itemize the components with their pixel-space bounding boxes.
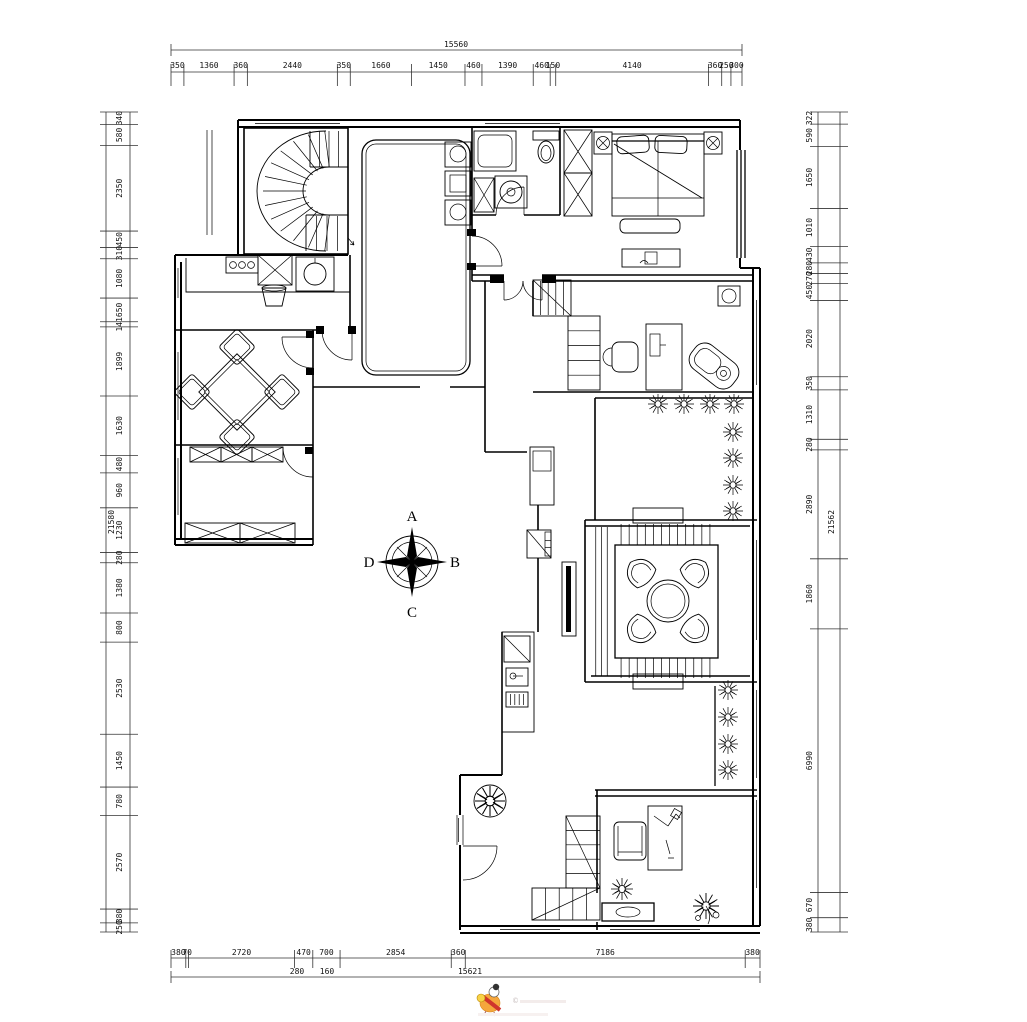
compass-north-label: A: [407, 509, 418, 525]
dimensions-left: 2158034058023504503101080650141189916304…: [100, 111, 138, 935]
svg-text:350: 350: [805, 376, 814, 391]
svg-text:2530: 2530: [115, 678, 124, 697]
svg-text:7186: 7186: [596, 948, 615, 957]
stairs-south: [532, 816, 600, 920]
svg-text:141: 141: [115, 317, 124, 332]
door-jambs: [305, 229, 556, 454]
svg-text:670: 670: [805, 898, 814, 913]
svg-text:380: 380: [805, 917, 814, 932]
svg-text:1390: 1390: [498, 61, 517, 70]
svg-text:21562: 21562: [827, 510, 836, 534]
kitchen-north: [186, 257, 350, 306]
dimensions-right: 2156232259016501010430280270450202035013…: [805, 111, 848, 932]
svg-text:580: 580: [115, 128, 124, 143]
svg-text:4140: 4140: [622, 61, 641, 70]
dimensions-bottom: 1562138070272047070028543607186380280160: [171, 948, 760, 983]
dimensions-top: 1556035013603602440350166014504601390460…: [170, 40, 744, 86]
dining-chairs: [174, 329, 301, 456]
svg-text:1650: 1650: [805, 168, 814, 187]
svg-text:780: 780: [115, 794, 124, 809]
svg-text:15560: 15560: [444, 40, 468, 49]
floor-plan-drawing: A B C D © 155603501360360244035016601450…: [0, 0, 1027, 1022]
floor-plan-page: A B C D © 155603501360360244035016601450…: [0, 0, 1027, 1022]
svg-text:2720: 2720: [232, 948, 251, 957]
lounge-chair: [684, 338, 743, 394]
compass-south-label: C: [407, 605, 417, 621]
svg-text:160: 160: [320, 967, 335, 976]
watermark-copyright: ©: [512, 997, 519, 1005]
svg-text:340: 340: [115, 111, 124, 126]
svg-text:6990: 6990: [805, 751, 814, 770]
watermark-text-faint2: [478, 1013, 548, 1016]
svg-text:590: 590: [805, 128, 814, 143]
svg-text:1380: 1380: [115, 578, 124, 597]
svg-text:280: 280: [290, 967, 305, 976]
svg-text:470: 470: [296, 948, 311, 957]
svg-text:360: 360: [233, 61, 248, 70]
svg-text:2890: 2890: [805, 495, 814, 514]
watermark-mascot-icon: [477, 984, 500, 1016]
svg-text:1080: 1080: [115, 269, 124, 288]
tv-cabinet: [622, 249, 680, 267]
svg-text:2854: 2854: [386, 948, 405, 957]
pantry-counter: [502, 447, 554, 732]
compass-rose: A B C D: [364, 509, 460, 621]
island-counter: [362, 140, 471, 375]
svg-text:650: 650: [115, 302, 124, 317]
watermark: ©: [477, 984, 566, 1016]
svg-text:1360: 1360: [199, 61, 218, 70]
dining-table: [199, 354, 275, 430]
svg-text:150: 150: [546, 61, 561, 70]
bedroom-south: [602, 806, 719, 924]
svg-text:430: 430: [805, 247, 814, 262]
svg-text:450: 450: [115, 232, 124, 247]
svg-text:2020: 2020: [805, 329, 814, 348]
svg-text:15621: 15621: [458, 967, 482, 976]
svg-text:322: 322: [805, 111, 814, 126]
svg-text:70: 70: [182, 948, 192, 957]
svg-text:1899: 1899: [115, 352, 124, 371]
tea-chairs: [621, 553, 716, 650]
svg-text:1660: 1660: [371, 61, 390, 70]
svg-text:480: 480: [115, 457, 124, 472]
svg-text:1230: 1230: [115, 520, 124, 539]
svg-text:2350: 2350: [115, 178, 124, 197]
master-bedroom: [594, 132, 722, 267]
generated-details: [185, 130, 710, 920]
svg-text:1310: 1310: [805, 405, 814, 424]
svg-text:450: 450: [805, 285, 814, 300]
built-in-appliances: [445, 142, 471, 225]
svg-text:1010: 1010: [805, 218, 814, 237]
svg-text:360: 360: [451, 948, 466, 957]
svg-text:960: 960: [115, 483, 124, 498]
svg-text:1450: 1450: [115, 751, 124, 770]
entry-plant: [474, 785, 506, 817]
svg-text:380: 380: [745, 948, 760, 957]
svg-text:700: 700: [319, 948, 334, 957]
corner-plant: [693, 893, 719, 924]
watermark-text-faint: [520, 1000, 566, 1003]
compass-east-label: B: [450, 555, 460, 571]
compass-west-label: D: [364, 555, 375, 571]
bathroom: [474, 131, 559, 208]
svg-text:350: 350: [170, 61, 185, 70]
svg-text:350: 350: [337, 61, 352, 70]
svg-text:250: 250: [115, 920, 124, 935]
svg-text:460: 460: [466, 61, 481, 70]
svg-text:2570: 2570: [115, 852, 124, 871]
svg-text:1630: 1630: [115, 416, 124, 435]
svg-text:310: 310: [115, 246, 124, 261]
svg-text:800: 800: [115, 620, 124, 635]
dining-room: [174, 329, 301, 456]
svg-text:1860: 1860: [805, 584, 814, 603]
study-room: [533, 280, 744, 394]
svg-text:1450: 1450: [429, 61, 448, 70]
svg-text:2440: 2440: [283, 61, 302, 70]
